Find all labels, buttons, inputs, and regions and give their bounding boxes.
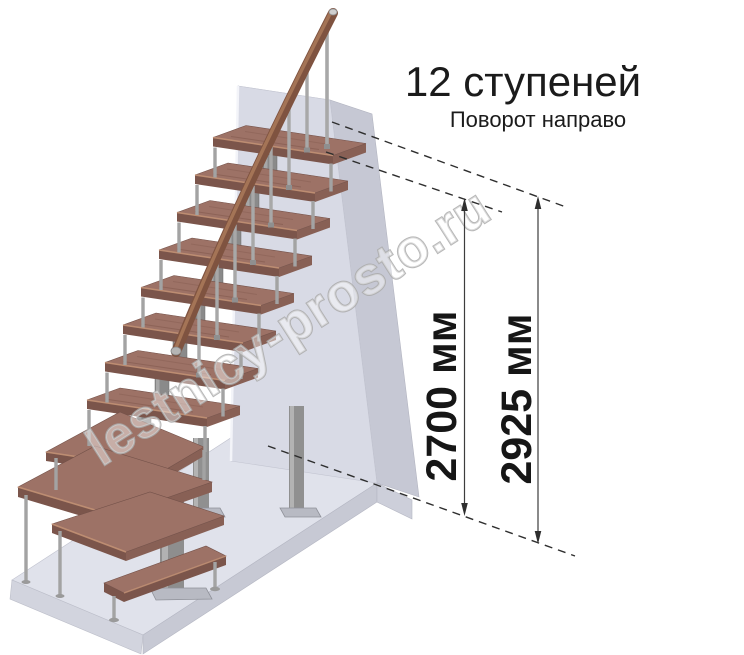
page-title: 12 ступеней xyxy=(405,58,641,105)
dimension-label-2700: 2700 мм xyxy=(418,310,466,481)
leg-foot xyxy=(210,587,220,591)
leg-foot xyxy=(109,618,119,622)
baluster-collar xyxy=(250,260,256,265)
header: 12 ступеней Поворот направо xyxy=(405,58,641,132)
baluster-collar xyxy=(268,223,274,228)
dimension-2925: 2925 мм xyxy=(493,196,541,544)
staircase-illustration: lestnicy-prosto.ru 2700 мм 2925 мм 12 ст… xyxy=(0,0,744,655)
column-highlight xyxy=(290,406,294,510)
baluster-collar xyxy=(232,298,238,303)
base-plate xyxy=(280,508,321,517)
baluster-collar xyxy=(304,148,310,153)
baluster-collar xyxy=(324,144,330,149)
leg-foot xyxy=(56,594,65,598)
staircase-diagram: lestnicy-prosto.ru 2700 мм 2925 мм 12 ст… xyxy=(0,0,744,655)
handrail-top-cap xyxy=(329,9,337,15)
dimension-label-2925: 2925 мм xyxy=(493,313,541,484)
arrow-down-icon xyxy=(461,503,468,516)
baluster-collar xyxy=(286,185,292,190)
leg-foot xyxy=(22,580,31,584)
handrail-end-cap xyxy=(171,347,181,355)
page-subtitle: Поворот направо xyxy=(450,107,626,132)
base-plate xyxy=(150,588,212,600)
arrow-up-icon xyxy=(535,196,542,209)
